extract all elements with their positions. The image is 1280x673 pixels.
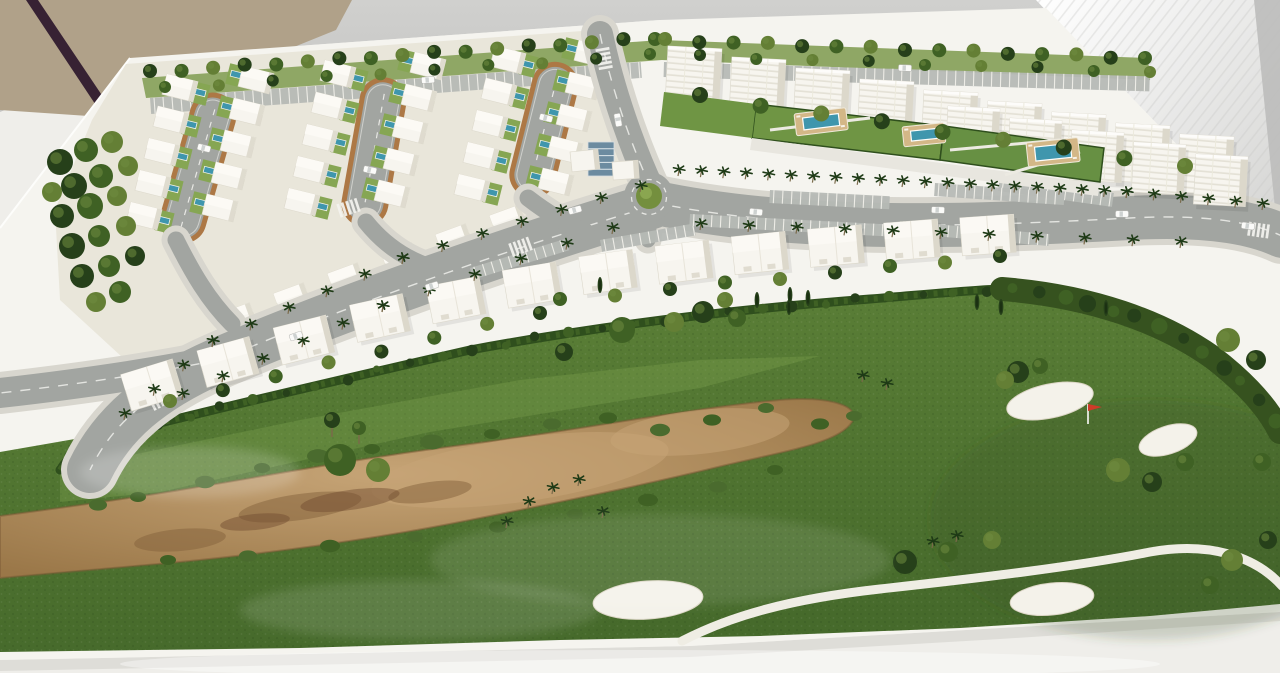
model-car: [749, 208, 763, 216]
model-car: [898, 65, 911, 72]
model-car: [421, 76, 434, 83]
townhouse: [807, 224, 867, 271]
clubhouse: [570, 149, 600, 172]
swimming-pool: [1026, 138, 1080, 167]
townhouse: [884, 219, 944, 265]
roundabout: [624, 172, 674, 222]
model-car: [931, 207, 944, 214]
model-car: [1116, 211, 1129, 217]
model-photo-render: [0, 0, 1280, 673]
townhouse: [731, 231, 792, 279]
apartment-block: [1193, 154, 1251, 212]
clubhouse: [612, 160, 639, 180]
architectural-model-photo: [0, 0, 1280, 673]
townhouse: [655, 239, 717, 288]
